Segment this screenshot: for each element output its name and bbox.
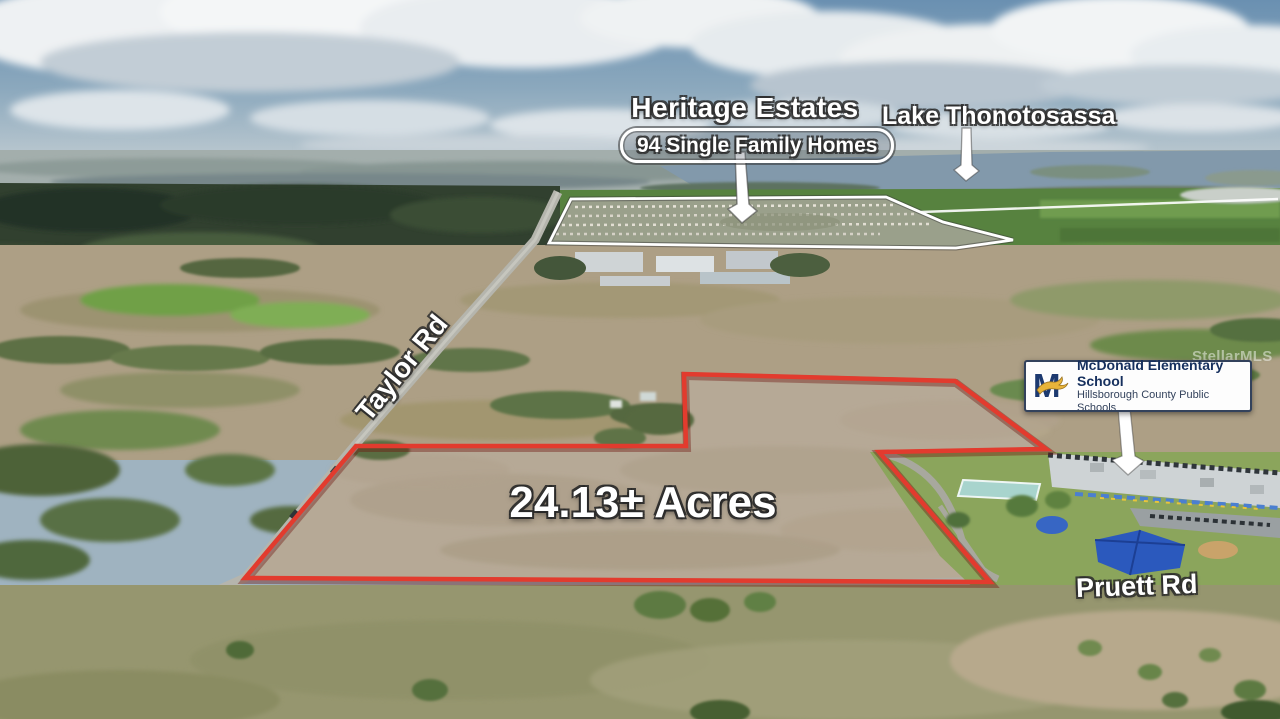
aerial-listing-photo: Heritage Estates 94 Single Family Homes …: [0, 0, 1280, 719]
school-mustang-icon: [1035, 374, 1069, 398]
school-info-card: M McDonald Elementary School Hillsboroug…: [1024, 360, 1252, 412]
school-logo: M: [1031, 366, 1071, 406]
school-name: McDonald Elementary School: [1077, 358, 1250, 389]
lake-label: Lake Thonotosassa: [882, 102, 1115, 131]
heritage-estates-badge: 94 Single Family Homes: [620, 128, 894, 163]
school-district: Hillsborough County Public Schools: [1077, 389, 1250, 414]
heritage-estates-annotation: Heritage Estates 94 Single Family Homes: [620, 92, 870, 163]
acreage-label: 24.13± Acres: [498, 478, 788, 528]
school-card-text: McDonald Elementary School Hillsborough …: [1077, 358, 1250, 414]
heritage-estates-title: Heritage Estates: [620, 92, 870, 124]
pruett-road-label: Pruett Rd: [1075, 569, 1198, 604]
